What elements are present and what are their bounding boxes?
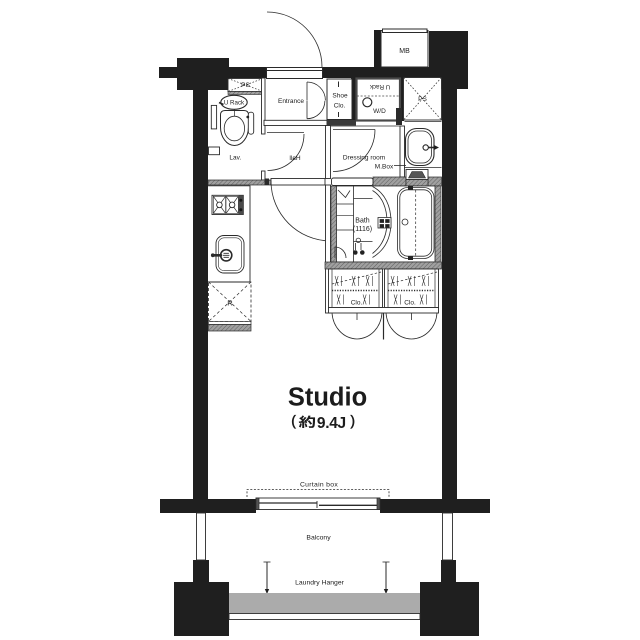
svg-text:U Rack: U Rack [369,83,390,90]
svg-text:Balcony: Balcony [306,535,331,542]
svg-text:Lav.: Lav. [229,154,241,161]
svg-text:PS: PS [241,82,250,89]
svg-text:Curtain box: Curtain box [300,482,338,489]
svg-text:Shoe: Shoe [332,93,348,100]
svg-text:Clo.: Clo. [334,102,346,109]
svg-text:Clo.: Clo. [404,300,416,307]
svg-text:Studio: Studio [288,384,367,412]
svg-text:Bath: Bath [355,218,370,225]
svg-text:PS: PS [418,96,427,103]
svg-text:Hall: Hall [289,155,301,162]
svg-text:9.4J: 9.4J [317,415,346,432]
svg-text:Entrance: Entrance [278,98,304,105]
svg-text:Dressing room: Dressing room [343,155,385,162]
svg-text:W/D: W/D [373,108,386,115]
svg-text:U Rack: U Rack [224,99,245,106]
svg-text:M.Box: M.Box [375,164,394,171]
svg-text:MB: MB [399,48,410,55]
svg-text:Laundry Hanger: Laundry Hanger [295,580,344,587]
svg-text:Clo.: Clo. [351,300,363,307]
svg-text:(1116): (1116) [353,226,372,233]
svg-text:R: R [227,299,233,308]
